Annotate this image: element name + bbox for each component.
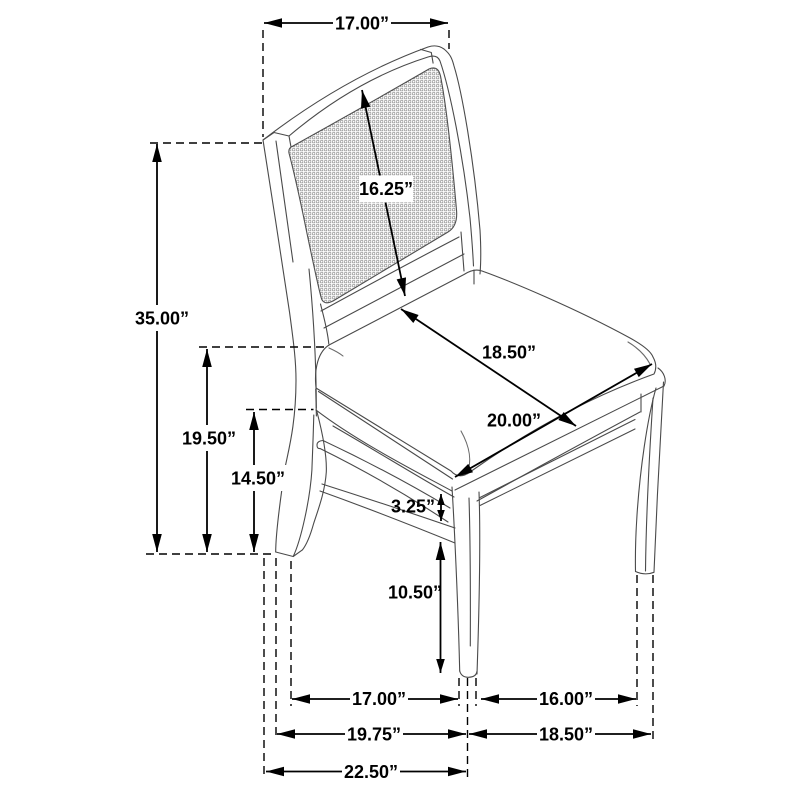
svg-text:18.50”: 18.50” [539, 724, 593, 744]
svg-text:14.50”: 14.50” [231, 468, 285, 488]
svg-text:3.25”: 3.25” [391, 496, 435, 516]
svg-text:16.00”: 16.00” [539, 689, 593, 709]
svg-text:16.25”: 16.25” [359, 179, 413, 199]
svg-text:18.50”: 18.50” [482, 342, 536, 362]
svg-text:19.75”: 19.75” [347, 724, 401, 744]
svg-text:10.50”: 10.50” [388, 582, 442, 602]
svg-text:20.00”: 20.00” [487, 410, 541, 430]
svg-text:17.00”: 17.00” [352, 689, 406, 709]
svg-text:22.50”: 22.50” [344, 762, 398, 782]
svg-text:17.00”: 17.00” [335, 13, 389, 33]
svg-text:35.00”: 35.00” [135, 308, 189, 328]
svg-text:19.50”: 19.50” [182, 428, 236, 448]
